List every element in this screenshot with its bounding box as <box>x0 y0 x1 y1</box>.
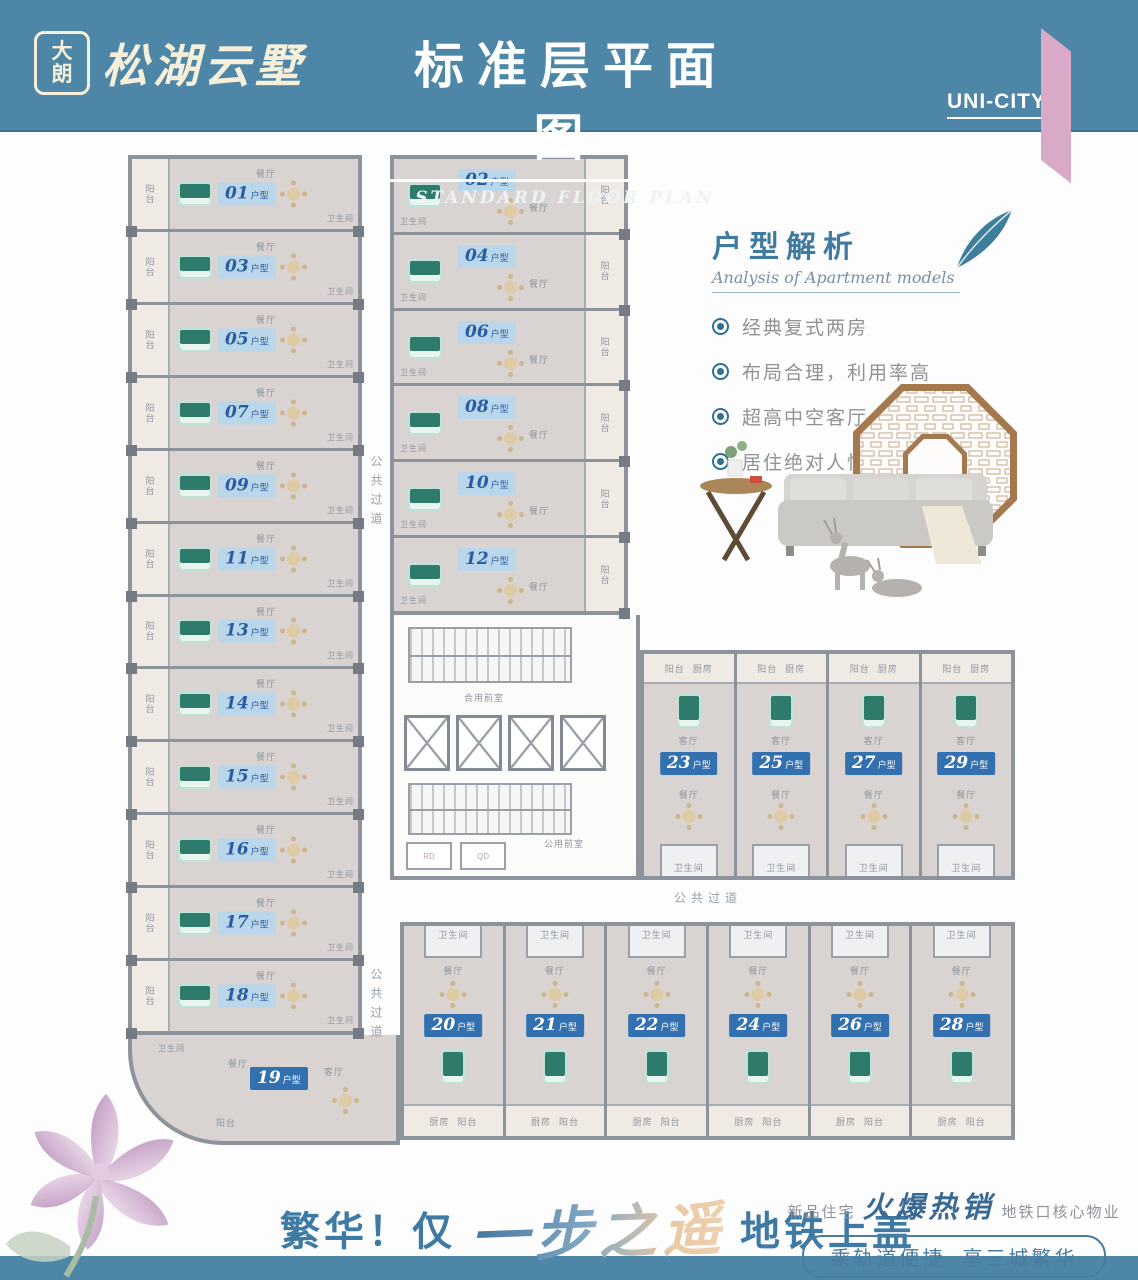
balcony-area: 阳台 <box>132 305 170 375</box>
unit-suffix: 户型 <box>864 1020 882 1033</box>
unit-number: 19 <box>257 1068 281 1088</box>
unit-suffix: 户型 <box>785 758 803 771</box>
room-label-balcony: 阳台 <box>864 1115 884 1128</box>
unit-cell: 阳台 03户型 餐厅 卫生间 <box>132 232 358 305</box>
room-label-balcony: 阳台 <box>942 662 962 675</box>
room-label-bath: 卫生间 <box>327 796 354 807</box>
room-label-dining: 餐厅 <box>256 605 276 618</box>
room-label-bath: 卫生间 <box>951 861 981 874</box>
promo-script: 火爆热销 <box>862 1184 994 1226</box>
room-label-balcony: 阳台 <box>850 662 870 675</box>
room-label-dining: 餐厅 <box>529 428 549 441</box>
room-label-bath: 卫生间 <box>327 723 354 734</box>
room-label-balcony: 阳台 <box>762 1115 782 1128</box>
room-label-dining: 餐厅 <box>256 167 276 180</box>
promo-suffix: 地铁口核心物业 <box>1002 1201 1121 1222</box>
sofa-icon <box>746 1050 770 1084</box>
balcony-area: 厨房 阳台 <box>912 1104 1011 1136</box>
unit-number: 23 <box>667 753 691 773</box>
unit-number: 15 <box>225 767 249 787</box>
room-label-dining: 餐厅 <box>545 964 565 977</box>
unit-number: 21 <box>533 1015 557 1035</box>
sofa-icon <box>408 335 442 359</box>
unit-suffix: 户型 <box>251 991 269 1004</box>
promo-prefix: 新品住宅 <box>787 1201 855 1222</box>
dining-table-icon <box>549 988 562 1001</box>
unit-number-badge: 17户型 <box>218 912 276 935</box>
sofa-large-icon <box>778 474 993 564</box>
balcony-area: 厨房 阳台 <box>709 1104 808 1136</box>
unit-number-badge: 04户型 <box>458 245 516 268</box>
sofa-icon <box>178 984 212 1008</box>
bathroom-area: 卫生间 <box>937 844 995 876</box>
room-label-dining: 餐厅 <box>864 788 884 801</box>
dining-table-icon <box>339 1094 352 1107</box>
unit-cell: 阳台 09户型 餐厅 卫生间 <box>132 451 358 524</box>
room-label-balcony: 阳台 <box>559 1115 579 1128</box>
room-label-bath: 卫生间 <box>158 1043 185 1054</box>
room-label-dining: 餐厅 <box>256 313 276 326</box>
side-table-icon <box>700 441 772 560</box>
unit-cell: 阳台 厨房 客厅 25户型 餐厅 卫生间 <box>737 654 830 876</box>
unit-number: 01 <box>225 183 249 203</box>
unit-number-badge: 24户型 <box>730 1014 788 1037</box>
dining-table-icon <box>287 406 300 419</box>
unit-suffix: 户型 <box>251 845 269 858</box>
balcony-area: 厨房 阳台 <box>404 1104 503 1136</box>
unit-suffix: 户型 <box>491 478 509 491</box>
right-bottom-wing: 卫生间 餐厅 20户型 厨房 阳台 卫生间 餐厅 21户型 <box>400 922 1015 1140</box>
sofa-icon <box>178 692 212 716</box>
unit-number: 16 <box>225 840 249 860</box>
header-bar: 大 朗 松湖云墅 标准层平面图 STANDARD FLOOR PLAN UNI-… <box>0 0 1138 132</box>
room-label-balcony: 阳台 <box>144 257 157 277</box>
unit-number-badge: 13户型 <box>218 620 276 643</box>
unit-cell: 12户型 餐厅 卫生间 阳台 <box>394 538 624 611</box>
dining-table-icon <box>287 260 300 273</box>
dining-table-icon <box>287 625 300 638</box>
unit-number: 07 <box>225 402 249 422</box>
room-label-living: 客厅 <box>679 734 699 747</box>
sofa-icon <box>862 694 886 728</box>
unit-number: 18 <box>225 986 249 1006</box>
room-label-dining: 餐厅 <box>256 896 276 909</box>
bathroom-area: 卫生间 <box>933 926 991 958</box>
unit-number-badge: 28户型 <box>933 1014 991 1037</box>
dining-table-icon <box>960 810 973 823</box>
room-label-dining: 餐厅 <box>850 964 870 977</box>
dining-table-icon <box>447 988 460 1001</box>
brand-logo: 大 朗 松湖云墅 <box>34 30 306 96</box>
room-label-bath: 卫生间 <box>400 367 427 378</box>
room-label-dining: 餐厅 <box>956 788 976 801</box>
bathroom-area: 卫生间 <box>660 844 718 876</box>
room-label-balcony: 阳台 <box>599 261 612 281</box>
unit-cell: 阳台 厨房 客厅 23户型 餐厅 卫生间 <box>644 654 737 876</box>
balcony-area: 阳台 <box>132 524 170 594</box>
dining-table-icon <box>504 584 517 597</box>
unit-cell: 阳台 厨房 客厅 29户型 餐厅 卫生间 <box>922 654 1012 876</box>
unit-number: 10 <box>465 473 489 493</box>
decor-scene <box>690 368 1030 606</box>
seal-logo-icon: 大 朗 <box>34 31 90 95</box>
unit-suffix: 户型 <box>251 407 269 420</box>
stairs-icon <box>408 627 572 683</box>
balcony-area: 阳台 <box>132 159 170 229</box>
poster-page: 大 朗 松湖云墅 标准层平面图 STANDARD FLOOR PLAN UNI-… <box>0 0 1138 1280</box>
slogan-script: 一步之遥 <box>469 1182 728 1275</box>
sofa-icon <box>950 1050 974 1084</box>
unit-number: 08 <box>465 397 489 417</box>
sofa-icon <box>178 838 212 862</box>
room-label-balcony: 阳台 <box>144 767 157 787</box>
dining-table-icon <box>287 479 300 492</box>
balcony-area: 阳台 <box>132 888 170 958</box>
room-label-bath: 卫生间 <box>438 928 468 941</box>
room-label-bath: 卫生间 <box>327 432 354 443</box>
sofa-icon <box>178 765 212 789</box>
unit-number-badge: 11户型 <box>218 547 276 570</box>
room-label-dining: 餐厅 <box>256 240 276 253</box>
balcony-area: 阳台 厨房 <box>737 654 827 684</box>
unit-number: 25 <box>759 753 783 773</box>
sofa-icon <box>954 694 978 728</box>
room-label-balcony: 阳台 <box>144 549 157 569</box>
page-title: 标准层平面图 <box>375 26 755 170</box>
room-label-kitchen: 厨房 <box>938 1115 958 1128</box>
room-label-kitchen: 厨房 <box>531 1115 551 1128</box>
unit-suffix: 户型 <box>491 554 509 567</box>
room-label-balcony: 阳台 <box>144 330 157 350</box>
room-label-dining: 餐厅 <box>952 964 972 977</box>
dining-table-icon <box>955 988 968 1001</box>
unit-suffix: 户型 <box>251 626 269 639</box>
room-label-dining: 餐厅 <box>256 459 276 472</box>
unit-number: 09 <box>225 475 249 495</box>
balcony-area: 阳台 <box>132 815 170 885</box>
room-label-balcony: 阳台 <box>661 1115 681 1128</box>
unit-number: 03 <box>225 256 249 276</box>
bathroom-area: 卫生间 <box>729 926 787 958</box>
unit-suffix: 户型 <box>491 327 509 340</box>
sofa-icon <box>848 1050 872 1084</box>
unit-cell: 阳台 11户型 餐厅 卫生间 <box>132 524 358 597</box>
room-label-bath: 卫生间 <box>327 869 354 880</box>
unit-number-badge: 25户型 <box>752 752 810 775</box>
room-label-balcony: 阳台 <box>144 403 157 423</box>
balcony-area: 阳台 <box>132 451 170 521</box>
room-label-kitchen: 厨房 <box>878 662 898 675</box>
room-label-dining: 餐厅 <box>647 964 667 977</box>
bullet-icon <box>712 318 729 335</box>
unit-suffix: 户型 <box>251 480 269 493</box>
elevator-icon <box>560 715 606 771</box>
sofa-icon <box>408 411 442 435</box>
unit-number-badge: 07户型 <box>218 401 276 424</box>
room-label-dining: 餐厅 <box>443 964 463 977</box>
dining-table-icon <box>504 432 517 445</box>
room-label-balcony: 阳台 <box>144 986 157 1006</box>
sofa-icon <box>178 255 212 279</box>
room-label-bath: 卫生间 <box>859 861 889 874</box>
balcony-area: 阳台 <box>132 378 170 448</box>
corridor-label: 公共过道 <box>674 889 742 906</box>
balcony-area: 阳台 厨房 <box>829 654 919 684</box>
unit-number-badge: 08户型 <box>458 396 516 419</box>
unit-number-badge: 22户型 <box>628 1014 686 1037</box>
sofa-icon <box>178 182 212 206</box>
pink-ribbon <box>1041 28 1071 183</box>
room-label-bath: 卫生间 <box>674 861 704 874</box>
unit-number: 06 <box>465 322 489 342</box>
room-label-living: 客厅 <box>956 734 976 747</box>
unit-cell: 06户型 餐厅 卫生间 阳台 <box>394 311 624 387</box>
dining-table-icon <box>867 810 880 823</box>
balcony-area: 阳台 <box>584 462 624 535</box>
unit-cell: 阳台 17户型 餐厅 卫生间 <box>132 888 358 961</box>
room-label-balcony: 阳台 <box>457 1115 477 1128</box>
unit-number: 11 <box>225 548 249 568</box>
flower-illustration <box>0 1078 195 1280</box>
unit-suffix: 户型 <box>970 758 988 771</box>
dining-table-icon <box>287 698 300 711</box>
unit-suffix: 户型 <box>491 251 509 264</box>
room-label-balcony: 阳台 <box>599 565 612 585</box>
room-label-bath: 卫生间 <box>327 213 354 224</box>
elevator-icon <box>456 715 502 771</box>
room-label-balcony: 阳台 <box>144 621 157 641</box>
dining-table-icon <box>752 988 765 1001</box>
unit-suffix: 户型 <box>251 772 269 785</box>
room-label-bath: 卫生间 <box>642 928 672 941</box>
dining-table-icon <box>287 187 300 200</box>
unit-number: 29 <box>944 753 968 773</box>
promo-block: 新品住宅 火爆热销 地铁口核心物业 乘轨道便捷 享三城繁华 <box>786 1184 1122 1278</box>
unit-suffix: 户型 <box>661 1020 679 1033</box>
unit-suffix: 户型 <box>251 188 269 201</box>
room-label-dining: 餐厅 <box>771 788 791 801</box>
balcony-area: 阳台 厨房 <box>922 654 1012 684</box>
middle-wing: 02户型 餐厅 卫生间 阳台 04户型 餐厅 卫生间 阳台 <box>390 155 628 615</box>
seal-char-bottom: 朗 <box>52 63 73 86</box>
unit-number-badge: 16户型 <box>218 839 276 862</box>
balcony-area: 厨房 阳台 <box>506 1104 605 1136</box>
unit-number: 12 <box>465 549 489 569</box>
bathroom-area: 卫生间 <box>752 844 810 876</box>
unit-cell: 阳台 01户型 餐厅 卫生间 <box>132 159 358 232</box>
unit-number: 04 <box>465 246 489 266</box>
room-label-bath: 卫生间 <box>327 286 354 297</box>
sofa-icon <box>645 1050 669 1084</box>
dining-table-icon <box>504 357 517 370</box>
unit-suffix: 户型 <box>762 1020 780 1033</box>
bathroom-area: 卫生间 <box>831 926 889 958</box>
dining-table-icon <box>682 810 695 823</box>
seal-char-top: 大 <box>52 40 73 63</box>
unit-number-badge: 18户型 <box>218 985 276 1008</box>
room-label-bath: 卫生间 <box>327 578 354 589</box>
room-label-balcony: 阳台 <box>599 489 612 509</box>
room-label-bath: 卫生间 <box>947 928 977 941</box>
dining-table-icon <box>287 990 300 1003</box>
room-label-kitchen: 厨房 <box>836 1115 856 1128</box>
bathroom-area: 卫生间 <box>845 844 903 876</box>
room-label-bath: 卫生间 <box>743 928 773 941</box>
balcony-area: 阳台 <box>584 538 624 611</box>
sofa-icon <box>441 1050 465 1084</box>
unit-cell: 卫生间 餐厅 22户型 厨房 阳台 <box>607 926 709 1136</box>
room-label-balcony: 阳台 <box>599 337 612 357</box>
dining-table-icon <box>504 508 517 521</box>
unit-suffix: 户型 <box>457 1020 475 1033</box>
room-label-dining: 餐厅 <box>228 1057 248 1070</box>
balcony-area: 阳台 <box>584 235 624 308</box>
uni-city-tag: UNI-CITY <box>947 90 1046 119</box>
title-block: 标准层平面图 STANDARD FLOOR PLAN <box>375 26 755 208</box>
unit-number: 20 <box>431 1015 455 1035</box>
lobby-label-top: 合用前室 <box>464 691 504 704</box>
sofa-icon <box>178 401 212 425</box>
sofa-icon <box>178 619 212 643</box>
stairs-icon <box>408 783 572 835</box>
right-top-wing: 阳台 厨房 客厅 23户型 餐厅 卫生间 阳台 厨房 客厅 <box>640 650 1015 880</box>
unit-cell: 08户型 餐厅 卫生间 阳台 <box>394 386 624 462</box>
room-label-dining: 餐厅 <box>748 964 768 977</box>
page-subtitle: STANDARD FLOOR PLAN <box>375 188 755 208</box>
sofa-icon <box>543 1050 567 1084</box>
unit-suffix: 户型 <box>559 1020 577 1033</box>
promo-line: 新品住宅 火爆热销 地铁口核心物业 <box>786 1184 1122 1226</box>
unit-cell: 阳台 14户型 餐厅 卫生间 <box>132 669 358 742</box>
unit-number: 14 <box>225 694 249 714</box>
unit-cell: 卫生间 餐厅 21户型 厨房 阳台 <box>506 926 608 1136</box>
unit-number-badge: 20户型 <box>424 1014 482 1037</box>
elevator-icon <box>404 715 450 771</box>
room-label-kitchen: 厨房 <box>429 1115 449 1128</box>
unit-number-badge: 14户型 <box>218 693 276 716</box>
bullet-text: 经典复式两房 <box>742 313 868 340</box>
sofa-icon <box>408 563 442 587</box>
dining-table-icon <box>650 988 663 1001</box>
room-label-bath: 卫生间 <box>327 942 354 953</box>
sofa-icon <box>178 474 212 498</box>
room-label-living: 客厅 <box>771 734 791 747</box>
brand-name: 松湖云墅 <box>102 30 306 96</box>
room-label-bath: 卫生间 <box>845 928 875 941</box>
balcony-area: 厨房 阳台 <box>607 1104 706 1136</box>
balcony-area: 厨房 阳台 <box>811 1104 910 1136</box>
unit-suffix: 户型 <box>878 758 896 771</box>
dining-table-icon <box>287 552 300 565</box>
unit-number: 27 <box>852 753 876 773</box>
room-label-living: 客厅 <box>324 1065 344 1078</box>
lobby-label-bottom: 公用前室 <box>544 837 584 850</box>
unit-number-badge: 05户型 <box>218 328 276 351</box>
balcony-area: 阳台 <box>132 597 170 667</box>
room-label-dining: 餐厅 <box>256 969 276 982</box>
balcony-area: 阳台 <box>132 669 170 739</box>
unit-cell: 阳台 07户型 餐厅 卫生间 <box>132 378 358 451</box>
room-label-bath: 卫生间 <box>540 928 570 941</box>
unit-number-badge: 01户型 <box>218 182 276 205</box>
room-label-bath: 卫生间 <box>400 595 427 606</box>
sofa-icon <box>769 694 793 728</box>
unit-number-badge: 19户型 <box>250 1067 308 1090</box>
room-label-bath: 卫生间 <box>327 359 354 370</box>
room-label-dining: 餐厅 <box>679 788 699 801</box>
unit-suffix: 户型 <box>251 334 269 347</box>
room-label-dining: 餐厅 <box>256 823 276 836</box>
unit-number: 13 <box>225 621 249 641</box>
unit-number-badge: 29户型 <box>937 752 995 775</box>
sofa-icon <box>408 487 442 511</box>
balcony-area: 阳台 <box>584 386 624 459</box>
slogan-prefix: 繁华！仅 <box>280 1199 456 1257</box>
balcony-area: 阳台 <box>132 961 170 1031</box>
unit-cell: 卫生间 餐厅 24户型 厨房 阳台 <box>709 926 811 1136</box>
unit-number-badge: 03户型 <box>218 255 276 278</box>
room-label-bath: 卫生间 <box>766 861 796 874</box>
service-core: 合用前室 公用前室 RD QD <box>390 615 640 880</box>
balcony-area: 阳台 <box>132 232 170 302</box>
unit-cell: 10户型 餐厅 卫生间 阳台 <box>394 462 624 538</box>
unit-suffix: 户型 <box>251 699 269 712</box>
room-label-balcony: 阳台 <box>144 913 157 933</box>
unit-suffix: 户型 <box>251 553 269 566</box>
room-label-balcony: 阳台 <box>216 1116 236 1129</box>
room-label-living: 客厅 <box>864 734 884 747</box>
unit-number-badge: 21户型 <box>526 1014 584 1037</box>
unit-cell: 阳台 15户型 餐厅 卫生间 <box>132 742 358 815</box>
unit-suffix: 户型 <box>251 918 269 931</box>
room-label-bath: 卫生间 <box>400 292 427 303</box>
dining-table-icon <box>287 844 300 857</box>
dining-table-icon <box>287 333 300 346</box>
room-label-dining: 餐厅 <box>256 532 276 545</box>
room-label-bath: 卫生间 <box>327 1015 354 1026</box>
room-label-balcony: 阳台 <box>144 184 157 204</box>
unit-cell: 阳台 13户型 餐厅 卫生间 <box>132 597 358 670</box>
unit-cell: 阳台 16户型 餐厅 卫生间 <box>132 815 358 888</box>
unit-number-badge: 15户型 <box>218 766 276 789</box>
balcony-area: 阳台 <box>132 742 170 812</box>
room-label-balcony: 阳台 <box>665 662 685 675</box>
bathroom-area: 卫生间 <box>526 926 584 958</box>
unit-number: 28 <box>940 1015 964 1035</box>
corridor-label: 公共过道 <box>368 455 385 531</box>
dining-table-icon <box>504 281 517 294</box>
unit-number: 26 <box>838 1015 862 1035</box>
room-label-dining: 餐厅 <box>256 677 276 690</box>
unit-number-badge: 23户型 <box>660 752 718 775</box>
room-label-dining: 餐厅 <box>529 504 549 517</box>
unit-number-badge: 27户型 <box>845 752 903 775</box>
promo-pill: 乘轨道便捷 享三城繁华 <box>802 1235 1105 1278</box>
unit-cell: 阳台 18户型 餐厅 卫生间 <box>132 961 358 1031</box>
sofa-icon <box>178 547 212 571</box>
sofa-icon <box>408 259 442 283</box>
unit-number-badge: 10户型 <box>458 472 516 495</box>
corridor-label: 公共过道 <box>368 968 385 1044</box>
room-label-balcony: 阳台 <box>757 662 777 675</box>
room-label-kitchen: 厨房 <box>970 662 990 675</box>
elevator-icon <box>508 715 554 771</box>
unit-number-badge: 09户型 <box>218 474 276 497</box>
analysis-subtitle: Analysis of Apartment models <box>712 266 960 293</box>
room-label-balcony: 阳台 <box>144 840 157 860</box>
bathroom-area: 卫生间 <box>424 926 482 958</box>
room-label-bath: 卫生间 <box>400 443 427 454</box>
